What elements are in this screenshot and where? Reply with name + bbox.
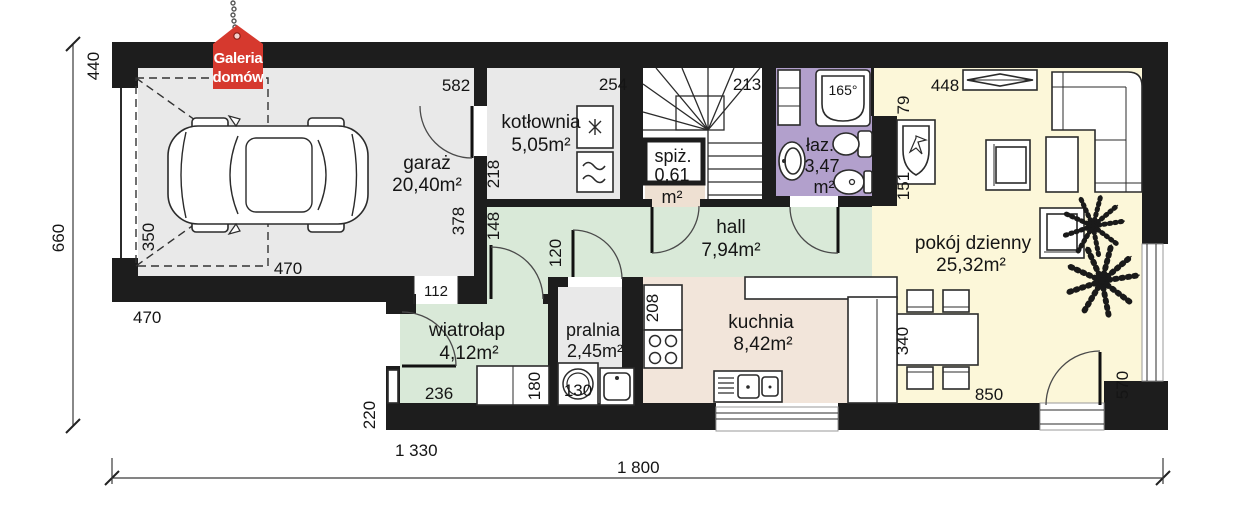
logo-tag: Galeria domów [213,1,265,89]
kitchen-sink-icon [714,371,782,402]
hall-label: hall [716,217,746,238]
bathtub-icon [816,70,870,126]
dim-350: 350 [139,223,158,251]
pantry-label: spiż. [654,146,691,166]
radiator-icon [388,370,398,403]
dim-660: 660 [49,224,68,252]
dim-850: 850 [975,385,1003,404]
logo-tag-hole [234,33,240,39]
dim-220: 220 [360,401,379,429]
bathroom-label: łaz. [806,135,834,155]
dim-120: 120 [546,239,565,267]
floor-plan-page: spiż. 0,61 m² [0,0,1233,526]
pantry-area-unit: m² [662,187,683,207]
hall-area: 7,94m² [701,240,760,261]
pantry-area: 0,61 [654,165,689,185]
dim-148: 148 [484,212,503,240]
bathroom-shelf-icon [778,70,800,125]
bathroom-area: 3,47 [804,156,839,176]
car-icon [168,116,368,234]
vestibule-label: wiatrołap [428,320,505,341]
dim-378: 378 [449,207,468,235]
logo-line1: Galeria [214,50,264,67]
dim-582: 582 [442,76,470,95]
bidet-icon [834,170,872,194]
dim-340: 340 [893,327,912,355]
kitchen-area: 8,42m² [733,334,792,355]
laundry-sink-icon [600,368,634,405]
dim-1800: 1 800 [617,458,660,477]
dim-570: 570 [1113,371,1132,399]
dim-218: 218 [484,160,503,188]
logo-chain-icon [231,1,237,29]
dim-79: 79 [894,96,913,115]
stove-icon [644,330,682,368]
laundry-label: pralnia [566,320,621,340]
dim-213: 213 [733,75,761,94]
kitchen-counter-top [745,277,897,299]
sink-icon [779,142,805,180]
logo-line2: domów [213,69,265,86]
dim-180: 180 [525,372,544,400]
dim-1330: 1 330 [395,441,438,460]
tub-angle-label: 165° [829,82,858,98]
dim-151: 151 [894,172,913,200]
water-heater-icon [577,152,613,192]
dim-440: 440 [84,52,103,80]
kitchen-label: kuchnia [728,312,794,333]
kitchen-peninsula [848,297,897,403]
dim-112: 112 [424,283,448,300]
dim-208: 208 [643,294,662,322]
garage-door-opening [112,88,138,258]
garage-label: garaż [403,153,451,174]
dim-448: 448 [931,76,959,95]
dim-470-left: 470 [133,308,161,327]
dim-236: 236 [425,384,453,403]
terrace-door-opening [1040,403,1104,430]
bathroom-area-unit: m² [814,177,835,197]
living-right-window [1142,244,1163,381]
floor-plan-drawing: spiż. 0,61 m² [0,0,1233,526]
toilet-icon [833,131,872,157]
coffee-table-icon [1046,137,1078,192]
dim-254: 254 [599,75,627,94]
kitchen-window [716,407,838,431]
laundry-area: 2,45m² [567,341,623,361]
tv-sideboard-icon [963,70,1037,90]
garage-area: 20,40m² [392,175,462,196]
living-area: 25,32m² [936,255,1006,276]
boiler-label: kotłownia [501,112,581,133]
living-label: pokój dzienny [915,233,1032,254]
dim-130: 130 [564,381,592,400]
vestibule-area: 4,12m² [439,343,498,364]
armchair-icon [986,140,1030,190]
dim-470-garage: 470 [274,259,302,278]
boiler-area: 5,05m² [511,135,570,156]
